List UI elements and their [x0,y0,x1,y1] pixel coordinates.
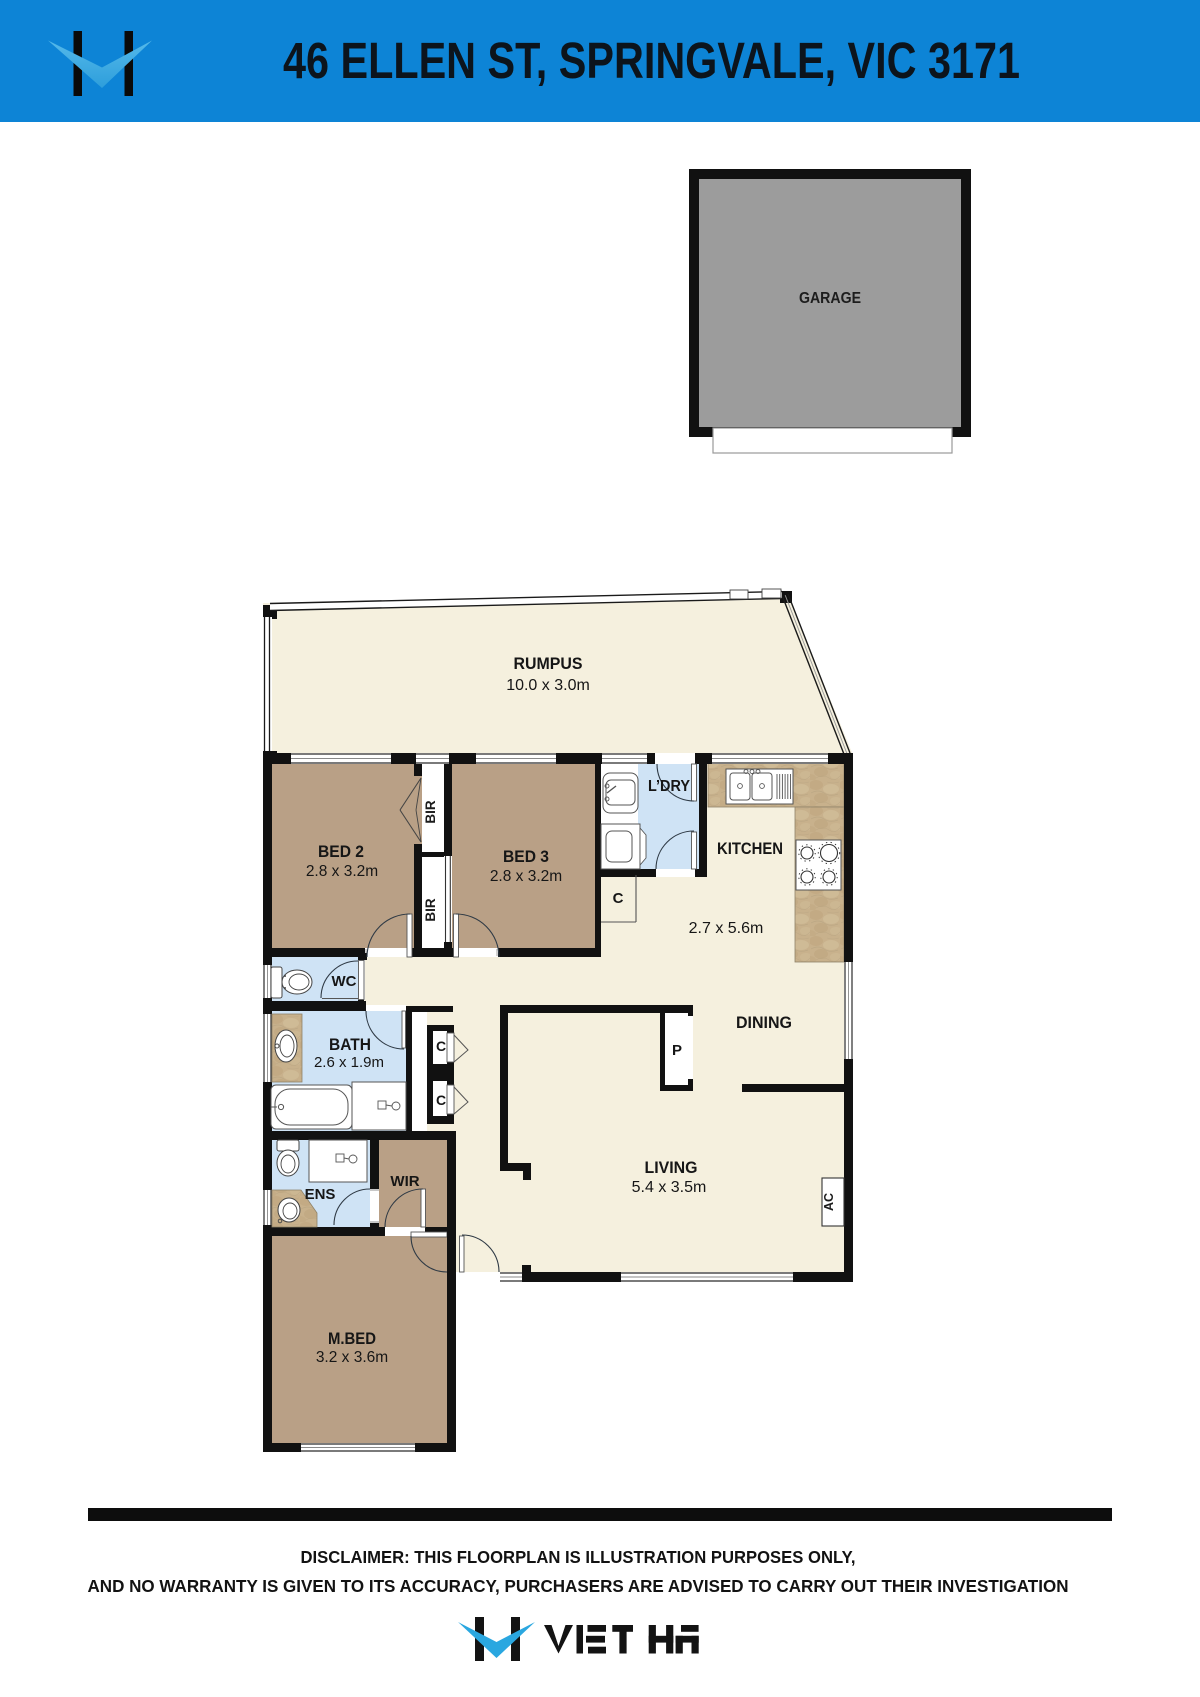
svg-text:KITCHEN: KITCHEN [717,839,783,858]
svg-text:DISCLAIMER: THIS FLOORPLAN IS: DISCLAIMER: THIS FLOORPLAN IS ILLUSTRATI… [301,1547,856,1567]
svg-text:BED 3: BED 3 [503,847,549,866]
svg-text:BIR: BIR [423,800,438,824]
svg-text:LIVING: LIVING [645,1158,698,1177]
svg-text:5.4 x 3.5m: 5.4 x 3.5m [632,1179,707,1196]
svg-text:C: C [613,890,624,907]
svg-text:10.0 x 3.0m: 10.0 x 3.0m [506,677,590,694]
svg-text:WIR: WIR [390,1173,419,1190]
svg-text:46 ELLEN ST, SPRINGVALE, VIC 3: 46 ELLEN ST, SPRINGVALE, VIC 3171 [283,32,1020,89]
svg-text:P: P [672,1042,682,1059]
svg-text:ENS: ENS [305,1186,336,1203]
svg-text:DINING: DINING [736,1013,792,1032]
svg-text:2.8 x 3.2m: 2.8 x 3.2m [306,863,378,880]
svg-text:GARAGE: GARAGE [799,290,861,307]
svg-text:AND NO WARRANTY IS GIVEN TO IT: AND NO WARRANTY IS GIVEN TO ITS ACCURACY… [88,1576,1069,1596]
svg-text:BIR: BIR [423,898,438,922]
svg-text:3.2 x 3.6m: 3.2 x 3.6m [316,1349,388,1366]
svg-text:WC: WC [332,973,357,990]
svg-text:2.7 x 5.6m: 2.7 x 5.6m [689,920,764,937]
svg-text:2.6 x 1.9m: 2.6 x 1.9m [314,1054,384,1071]
svg-text:AC: AC [822,1193,836,1211]
svg-text:M.BED: M.BED [328,1329,376,1348]
svg-text:L’DRY: L’DRY [648,778,690,795]
svg-text:RUMPUS: RUMPUS [514,654,583,673]
svg-text:C: C [436,1092,446,1108]
svg-text:C: C [436,1038,446,1054]
svg-text:2.8 x 3.2m: 2.8 x 3.2m [490,868,562,885]
svg-text:BED 2: BED 2 [318,842,364,861]
svg-text:BATH: BATH [329,1035,371,1054]
